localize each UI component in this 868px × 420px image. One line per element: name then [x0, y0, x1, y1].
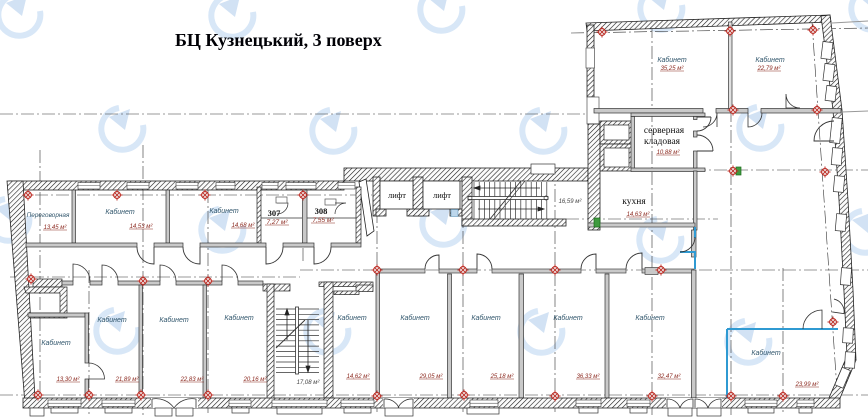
svg-text:Кабинет: Кабинет — [224, 314, 254, 322]
svg-text:Кабинет: Кабинет — [400, 314, 430, 322]
svg-text:Кабинет: Кабинет — [105, 208, 135, 216]
svg-text:лифт: лифт — [388, 190, 406, 200]
svg-text:Кабинет: Кабинет — [337, 314, 367, 322]
svg-text:Кабинет: Кабинет — [209, 207, 239, 215]
svg-text:Кабинет: Кабинет — [657, 56, 687, 64]
svg-text:17,08 м²: 17,08 м² — [297, 380, 321, 386]
svg-text:серверная: серверная — [644, 126, 685, 136]
svg-text:Кабинет: Кабинет — [41, 339, 71, 347]
svg-text:Кабинет: Кабинет — [159, 316, 189, 324]
svg-text:лифт: лифт — [433, 190, 451, 200]
svg-text:кладовая: кладовая — [644, 137, 681, 147]
svg-text:Кабинет: Кабинет — [755, 56, 785, 64]
svg-text:Переговорная: Переговорная — [27, 212, 70, 219]
svg-text:Кабинет: Кабинет — [635, 314, 665, 322]
svg-text:307: 307 — [268, 208, 282, 218]
svg-text:Кабинет: Кабинет — [751, 349, 781, 357]
svg-text:Кабинет: Кабинет — [97, 316, 127, 324]
svg-text:Кабинет: Кабинет — [553, 314, 583, 322]
svg-text:Кабинет: Кабинет — [471, 314, 501, 322]
svg-text:БЦ Кузнецький, 3 поверх: БЦ Кузнецький, 3 поверх — [175, 30, 382, 50]
svg-text:308: 308 — [315, 206, 328, 216]
svg-text:кухня: кухня — [622, 197, 646, 207]
svg-text:16,59 м²: 16,59 м² — [559, 199, 583, 205]
